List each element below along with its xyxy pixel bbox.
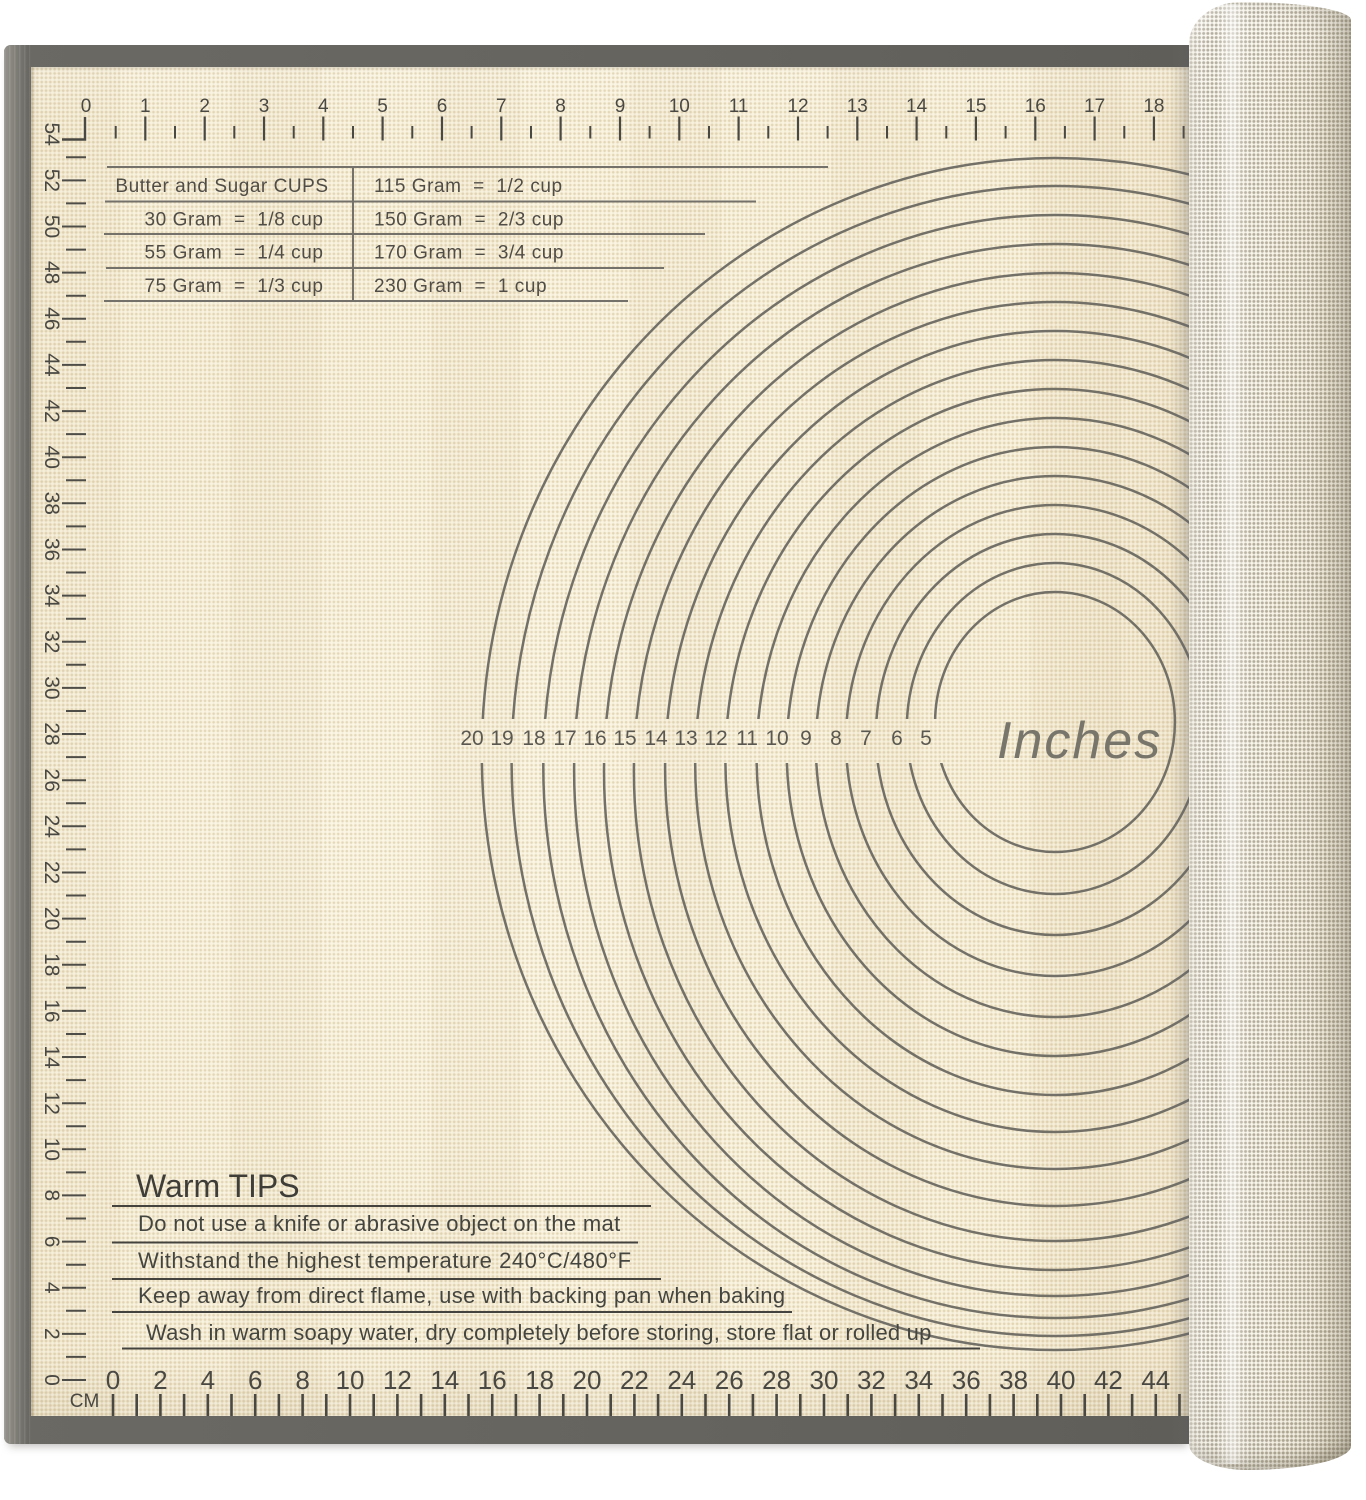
svg-text:Warm TIPS: Warm TIPS <box>136 1168 300 1204</box>
svg-text:30: 30 <box>40 676 63 699</box>
svg-text:5: 5 <box>377 96 388 117</box>
svg-text:9: 9 <box>800 727 812 750</box>
svg-text:6: 6 <box>437 96 448 117</box>
svg-text:36: 36 <box>40 538 63 561</box>
svg-text:20: 20 <box>460 727 483 750</box>
svg-text:15: 15 <box>613 727 636 750</box>
svg-text:24: 24 <box>40 815 63 839</box>
svg-text:44: 44 <box>1141 1365 1170 1395</box>
svg-text:170 Gram = 3/4 cup: 170 Gram = 3/4 cup <box>374 243 564 264</box>
svg-text:Wash in warm soapy water, dry: Wash in warm soapy water, dry completely… <box>146 1320 932 1345</box>
svg-text:18: 18 <box>522 727 545 750</box>
svg-text:26: 26 <box>40 769 63 792</box>
svg-text:30: 30 <box>810 1365 839 1395</box>
svg-text:8: 8 <box>830 727 842 750</box>
svg-text:0: 0 <box>81 96 92 117</box>
svg-text:15: 15 <box>965 96 986 117</box>
svg-text:17: 17 <box>1084 96 1105 117</box>
svg-text:22: 22 <box>40 861 63 884</box>
svg-text:10: 10 <box>40 1138 63 1161</box>
svg-text:34: 34 <box>904 1365 933 1395</box>
svg-text:10: 10 <box>669 96 690 117</box>
svg-text:12: 12 <box>40 1092 63 1115</box>
svg-text:0: 0 <box>40 1374 63 1386</box>
svg-text:14: 14 <box>40 1045 63 1069</box>
svg-text:4: 4 <box>318 96 329 117</box>
svg-text:22: 22 <box>620 1365 649 1395</box>
svg-text:150 Gram = 2/3 cup: 150 Gram = 2/3 cup <box>374 210 564 231</box>
svg-text:12: 12 <box>704 727 727 750</box>
svg-text:115 Gram = 1/2 cup: 115 Gram = 1/2 cup <box>374 176 563 197</box>
svg-text:42: 42 <box>1094 1365 1123 1395</box>
svg-text:55 Gram = 1/4 cup: 55 Gram = 1/4 cup <box>145 243 324 264</box>
svg-text:36: 36 <box>952 1365 981 1395</box>
svg-text:2: 2 <box>153 1365 167 1395</box>
svg-text:42: 42 <box>40 399 63 422</box>
svg-text:40: 40 <box>40 446 63 469</box>
svg-text:CM: CM <box>70 1391 100 1412</box>
svg-text:8: 8 <box>555 96 566 117</box>
svg-text:16: 16 <box>1025 96 1046 117</box>
svg-text:14: 14 <box>644 727 668 750</box>
svg-text:230 Gram = 1 cup: 230 Gram = 1 cup <box>374 276 547 297</box>
svg-text:44: 44 <box>40 353 63 377</box>
svg-text:4: 4 <box>201 1365 215 1395</box>
svg-text:18: 18 <box>1143 96 1164 117</box>
svg-text:6: 6 <box>891 727 903 750</box>
svg-text:26: 26 <box>715 1365 744 1395</box>
svg-text:28: 28 <box>762 1365 791 1395</box>
svg-text:6: 6 <box>248 1365 262 1395</box>
svg-text:54: 54 <box>40 123 63 147</box>
svg-text:10: 10 <box>765 727 788 750</box>
svg-text:Withstand the highest temperat: Withstand the highest temperature 240°C/… <box>138 1248 632 1273</box>
svg-text:24: 24 <box>667 1365 696 1395</box>
svg-text:46: 46 <box>40 307 63 330</box>
svg-text:32: 32 <box>40 630 63 653</box>
svg-text:3: 3 <box>259 96 270 117</box>
svg-text:Butter and Sugar CUPS: Butter and Sugar CUPS <box>115 176 328 197</box>
svg-text:38: 38 <box>40 492 63 515</box>
svg-text:34: 34 <box>40 584 63 608</box>
svg-text:28: 28 <box>40 722 63 745</box>
svg-text:Do not use a knife or abrasive: Do not use a knife or abrasive object on… <box>138 1211 621 1236</box>
svg-text:Inches: Inches <box>997 712 1162 770</box>
svg-text:8: 8 <box>40 1190 63 1202</box>
svg-text:2: 2 <box>199 96 210 117</box>
svg-text:52: 52 <box>40 169 63 192</box>
svg-text:40: 40 <box>1047 1365 1076 1395</box>
svg-text:2: 2 <box>40 1328 63 1340</box>
svg-text:Keep away from direct flame, u: Keep away from direct flame, use with ba… <box>138 1283 785 1308</box>
svg-text:16: 16 <box>40 999 63 1022</box>
svg-text:32: 32 <box>857 1365 886 1395</box>
svg-text:11: 11 <box>729 96 749 117</box>
svg-text:30 Gram = 1/8 cup: 30 Gram = 1/8 cup <box>145 210 324 231</box>
svg-text:6: 6 <box>40 1236 63 1248</box>
svg-text:9: 9 <box>615 96 626 117</box>
svg-text:1: 1 <box>140 96 151 117</box>
svg-text:18: 18 <box>525 1365 554 1395</box>
svg-text:38: 38 <box>999 1365 1028 1395</box>
svg-text:16: 16 <box>583 727 606 750</box>
svg-text:0: 0 <box>106 1365 120 1395</box>
svg-text:50: 50 <box>40 215 63 238</box>
svg-text:10: 10 <box>336 1365 365 1395</box>
svg-text:20: 20 <box>40 907 63 930</box>
svg-text:18: 18 <box>40 953 63 976</box>
svg-text:17: 17 <box>553 727 576 750</box>
svg-text:12: 12 <box>787 96 808 117</box>
svg-text:14: 14 <box>906 96 928 117</box>
svg-text:5: 5 <box>920 727 932 750</box>
svg-text:7: 7 <box>860 727 872 750</box>
svg-text:13: 13 <box>674 727 697 750</box>
svg-text:75 Gram = 1/3 cup: 75 Gram = 1/3 cup <box>145 276 324 297</box>
svg-text:19: 19 <box>490 727 513 750</box>
svg-text:4: 4 <box>40 1282 63 1294</box>
svg-text:14: 14 <box>430 1365 459 1395</box>
svg-text:48: 48 <box>40 261 63 284</box>
svg-text:11: 11 <box>736 727 758 750</box>
svg-text:13: 13 <box>847 96 868 117</box>
svg-text:7: 7 <box>496 96 507 117</box>
svg-text:16: 16 <box>478 1365 507 1395</box>
svg-text:12: 12 <box>383 1365 412 1395</box>
svg-text:8: 8 <box>295 1365 309 1395</box>
svg-text:20: 20 <box>573 1365 602 1395</box>
